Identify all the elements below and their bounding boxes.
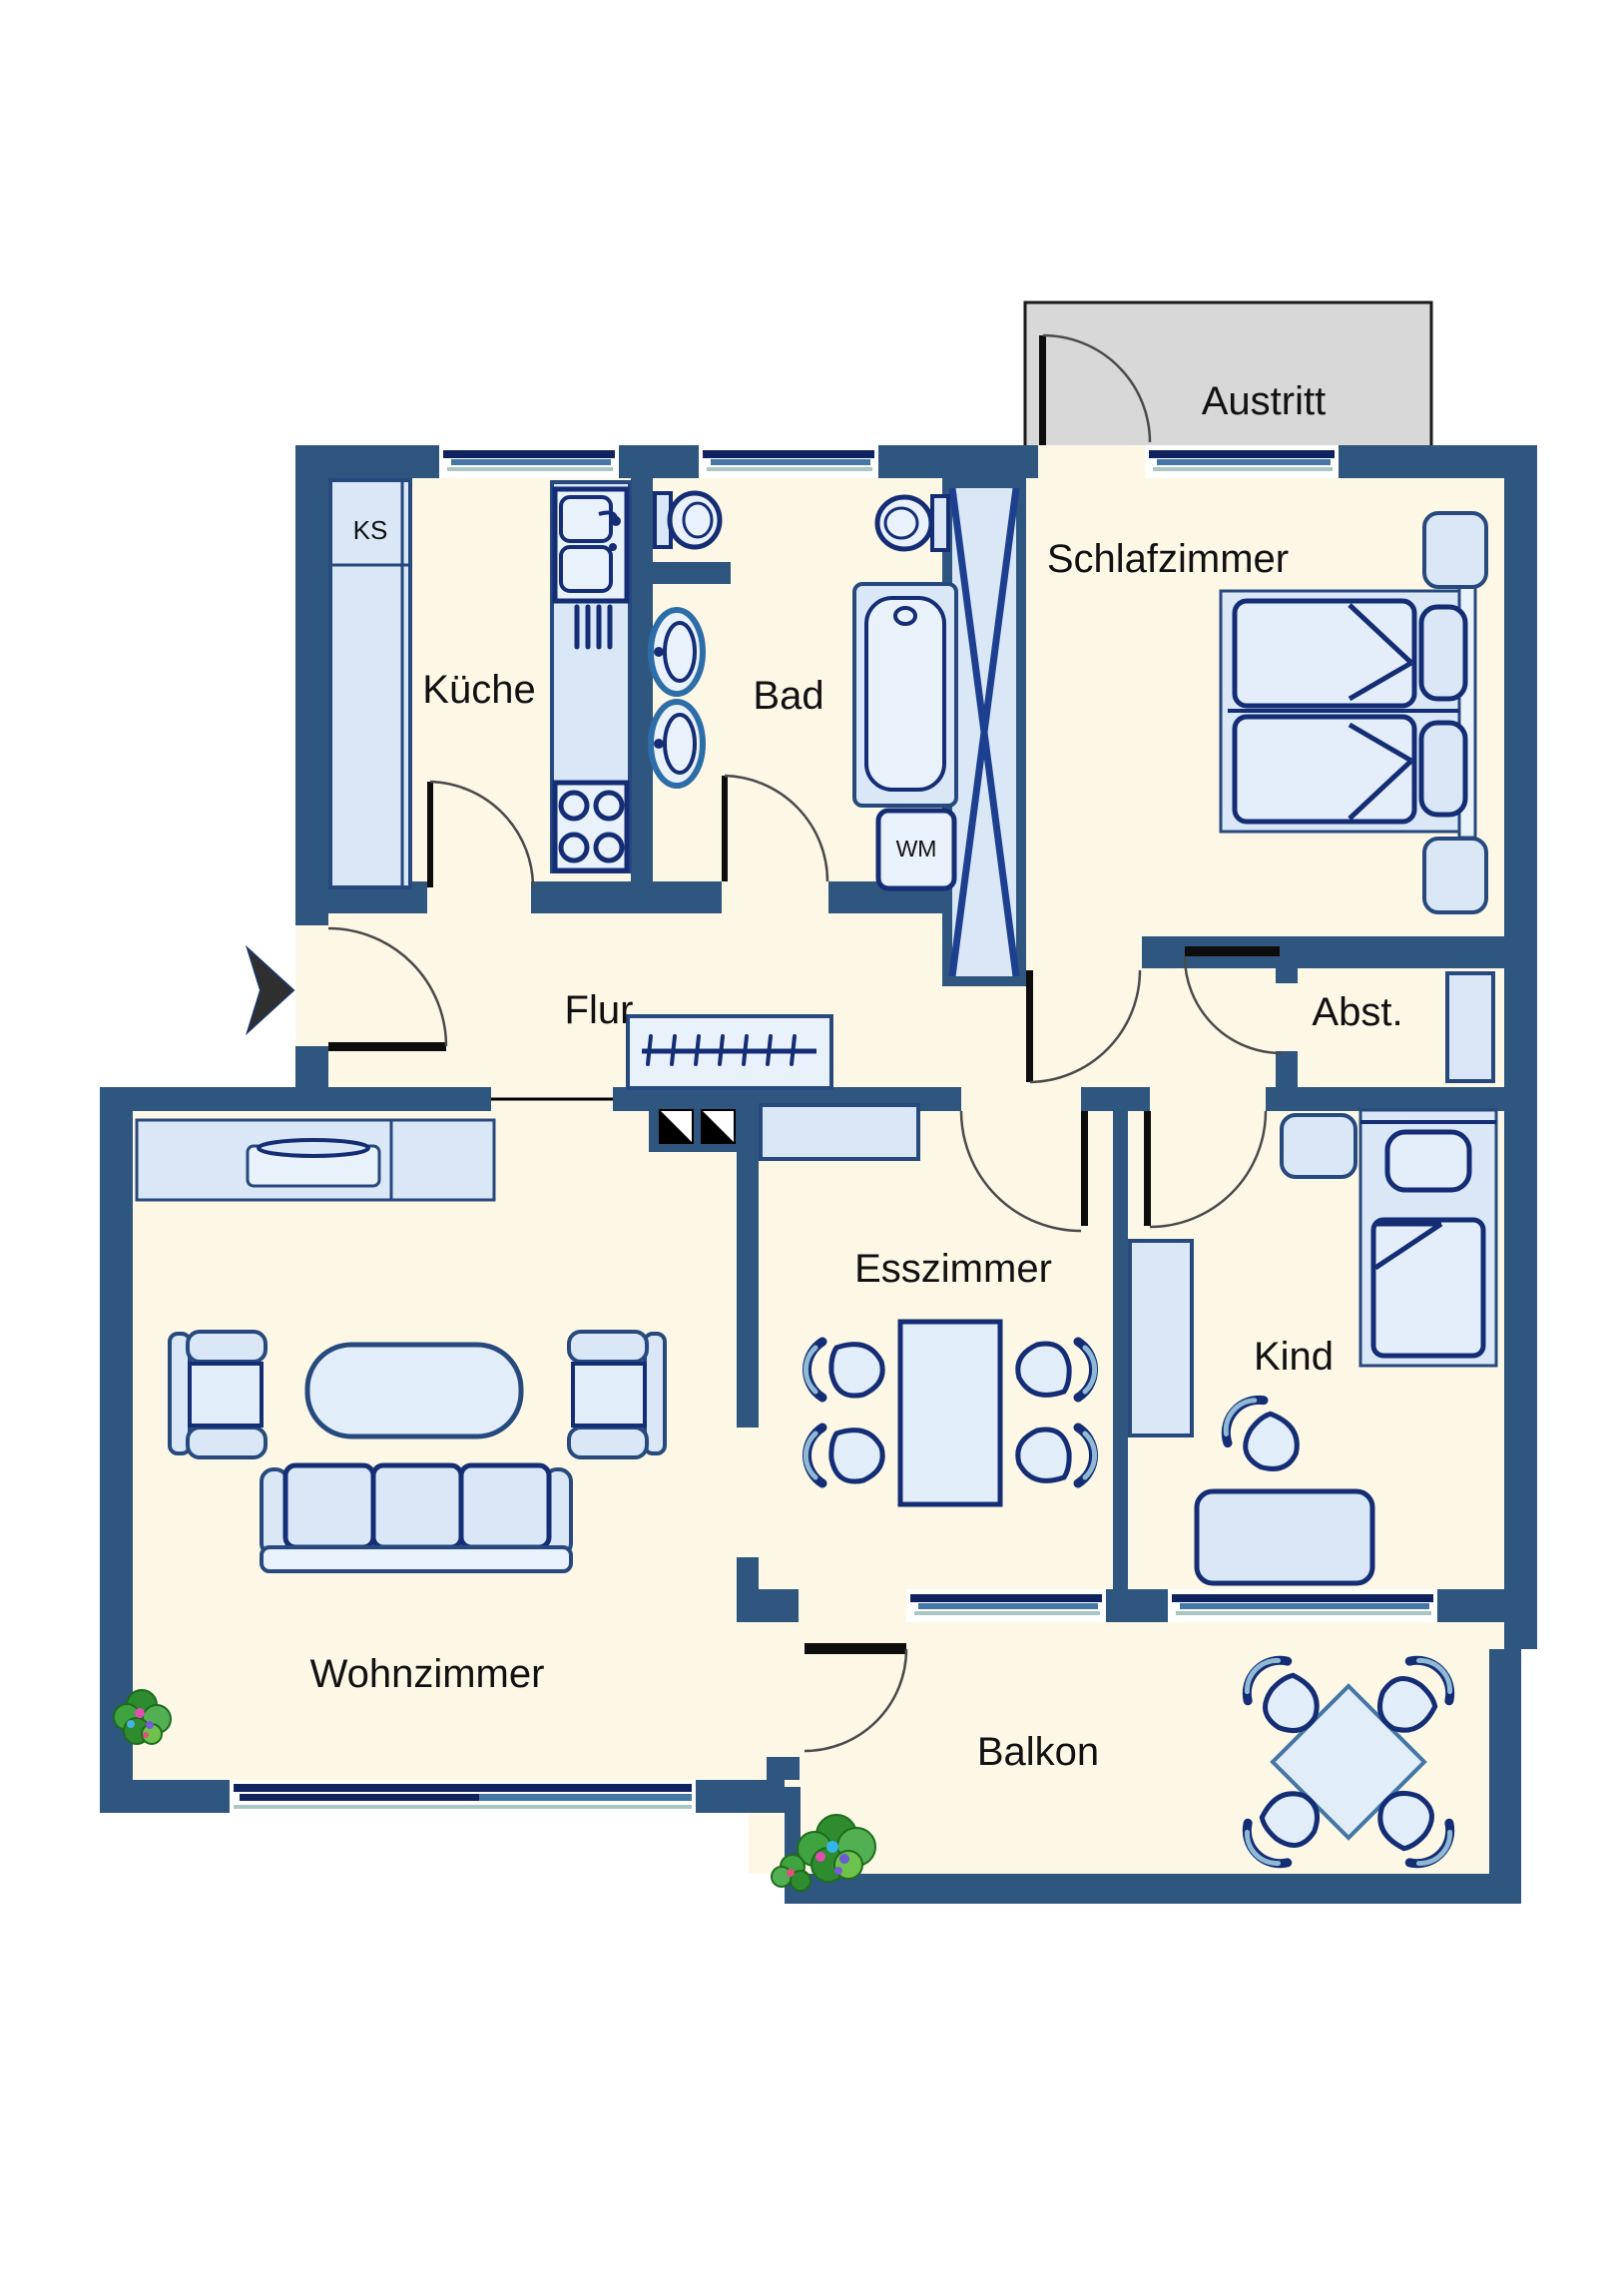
- stereo-dish: [259, 1140, 368, 1156]
- sideboard: [137, 1120, 494, 1200]
- floor-plan-page: WM: [0, 0, 1623, 2296]
- austritt-floor: [1025, 302, 1431, 447]
- label-austritt: Austritt: [1202, 379, 1326, 423]
- wall-segment: [1276, 1051, 1298, 1087]
- label-flur: Flur: [565, 988, 634, 1032]
- child-bed: [1360, 1110, 1496, 1366]
- pillow: [1387, 1132, 1469, 1190]
- bathtub-icon: [854, 584, 956, 806]
- mattress: [1235, 601, 1414, 706]
- window-kitchen: [439, 445, 619, 478]
- kitchen-sink: [555, 489, 627, 601]
- washing-machine-label: WM: [896, 836, 937, 861]
- mattress: [1235, 717, 1414, 822]
- wall-segment: [767, 1757, 800, 1780]
- coffee-table: [307, 1345, 521, 1436]
- fridge-label: KS: [353, 515, 388, 545]
- wall-segment: [531, 881, 722, 913]
- dining-sideboard: [761, 1105, 918, 1159]
- wall-segment: [737, 1111, 759, 1428]
- toilet-icon: [655, 493, 720, 547]
- stove-icon: [555, 783, 627, 870]
- label-wohnzimmer: Wohnzimmer: [310, 1652, 545, 1696]
- child-dresser: [1197, 1491, 1372, 1583]
- label-kueche: Küche: [422, 668, 535, 712]
- wall-segment: [1489, 1649, 1521, 1874]
- entrance-arrow-icon: [248, 948, 293, 1032]
- double-bed: [1221, 585, 1475, 838]
- label-bad: Bad: [753, 674, 823, 718]
- window-livingroom: [230, 1780, 696, 1813]
- window-bath: [699, 445, 878, 478]
- window-dining-balcony: [906, 1589, 1106, 1622]
- wall-segment: [1437, 1589, 1504, 1622]
- wall-segment: [1106, 1589, 1168, 1622]
- label-abst: Abst.: [1312, 990, 1402, 1034]
- toilet-icon: [877, 496, 948, 550]
- label-kind: Kind: [1254, 1335, 1334, 1379]
- washing-machine: WM: [878, 811, 954, 888]
- wall-segment: [100, 1087, 491, 1111]
- label-balkon: Balkon: [977, 1730, 1099, 1774]
- dining-table: [900, 1322, 1000, 1504]
- sofa: [262, 1465, 571, 1571]
- wall-segment: [1266, 1087, 1504, 1111]
- austritt-area: [1025, 302, 1431, 447]
- nightstand: [1424, 513, 1486, 587]
- wall-segment: [785, 1874, 1521, 1904]
- storage-shelf: [1447, 973, 1493, 1081]
- window-child-balcony: [1168, 1589, 1437, 1622]
- nightstand: [1282, 1115, 1355, 1177]
- floor-plan: WM: [0, 0, 1623, 2296]
- window-bedroom: [1145, 445, 1339, 478]
- blanket: [1373, 1220, 1483, 1356]
- label-esszimmer: Esszimmer: [854, 1247, 1052, 1291]
- armchair: [170, 1332, 266, 1457]
- wall-segment: [749, 1589, 799, 1622]
- sink-icon: [651, 610, 703, 694]
- wall-segment: [1081, 1087, 1150, 1111]
- floor-entrance-gap: [295, 925, 328, 1046]
- wall-segment: [295, 445, 328, 925]
- chimney-block: [649, 1090, 761, 1152]
- wall-segment: [100, 1780, 230, 1813]
- wall-segment: [696, 1780, 785, 1813]
- wall-segment: [1504, 445, 1537, 1649]
- pillow: [1421, 607, 1465, 699]
- wall-segment: [1113, 1111, 1128, 1589]
- nightstand: [1424, 839, 1486, 912]
- hall-wardrobe: [628, 1016, 831, 1088]
- sink-icon: [651, 702, 703, 786]
- pillow: [1421, 723, 1465, 815]
- armchair: [569, 1332, 665, 1457]
- austritt-door-opening: [1038, 445, 1148, 478]
- label-schlafzimmer: Schlafzimmer: [1047, 537, 1289, 581]
- wall-segment: [1276, 968, 1298, 983]
- child-desk: [1130, 1241, 1192, 1435]
- wall-segment: [653, 562, 731, 584]
